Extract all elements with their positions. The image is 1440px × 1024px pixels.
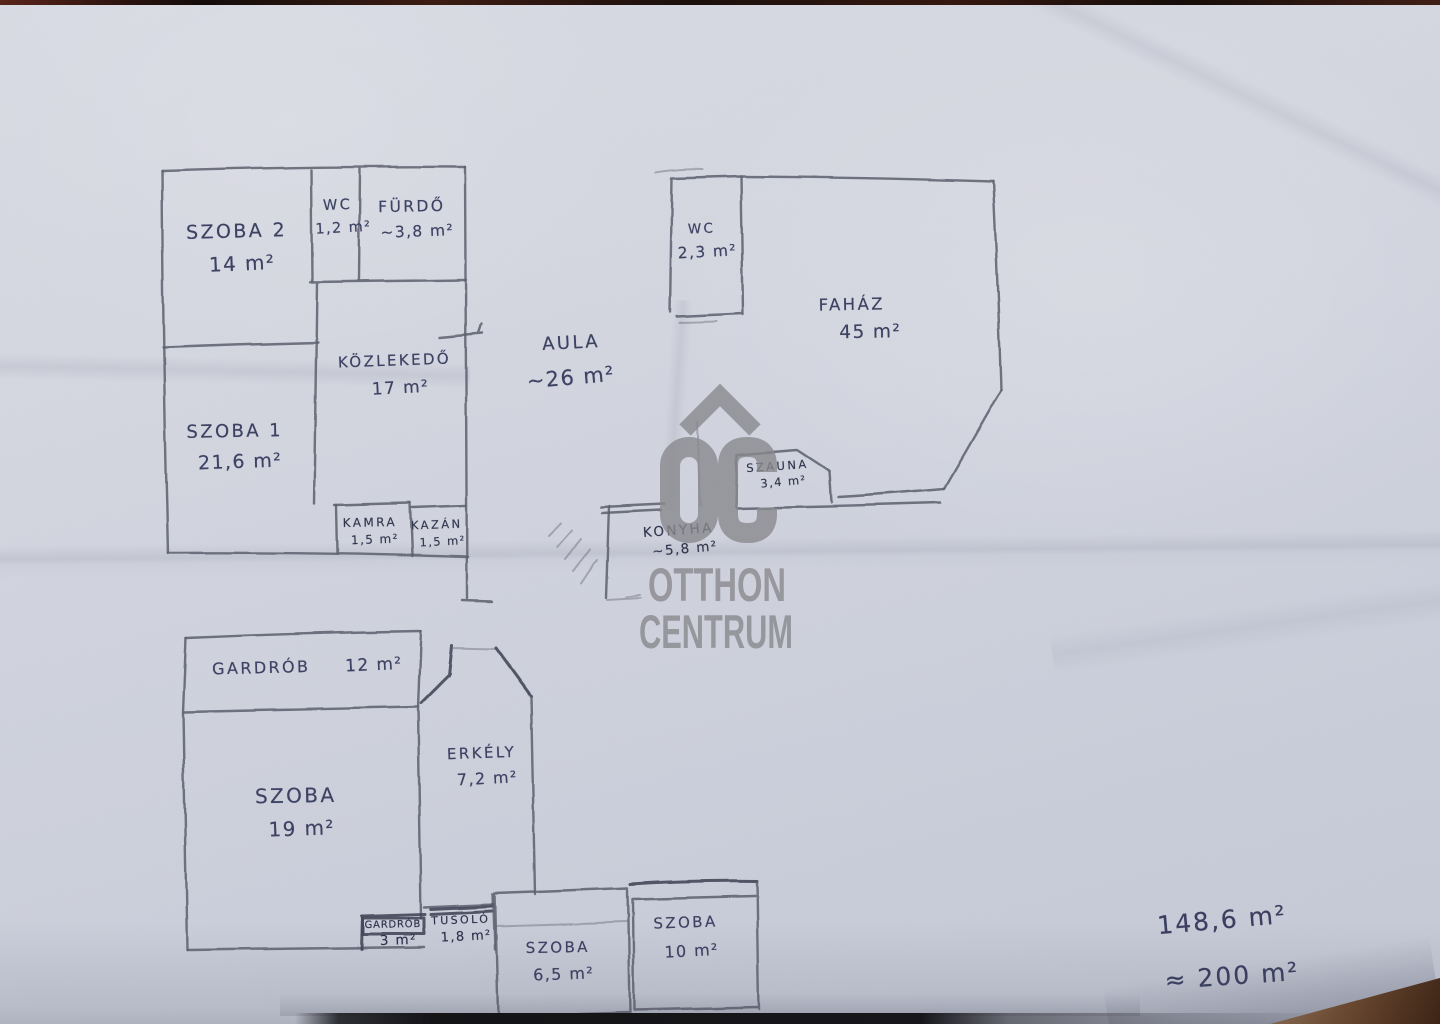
room-name: SZOBA [526, 938, 590, 957]
paper-crease-horizontal [0, 530, 1440, 580]
room-name: WC [688, 221, 716, 238]
room-label-wc-small: WC 1,2 m² [309, 197, 366, 238]
photo-grain [0, 0, 1440, 1024]
room-name: KONYHA [642, 520, 714, 541]
room-area: 3 m² [379, 932, 417, 949]
room-area: 1,8 m² [440, 928, 492, 946]
room-label-kazan: KAZÁN 1,5 m² [411, 517, 464, 550]
room-label-szoba1: SZOBA 1 21,6 m² [186, 420, 283, 474]
paper-crease-diagonal [947, 0, 1440, 300]
floor-plan-walls [0, 0, 1440, 1024]
wall-block-a-top [162, 167, 465, 171]
room-name: FAHÁZ [818, 294, 885, 314]
wall-kamra-top [334, 503, 410, 505]
wall-konyha-bottom [607, 595, 641, 600]
paper-edge-bottom [0, 1013, 1440, 1024]
wall-szoba65-inner [497, 922, 627, 926]
wall-foot [462, 600, 492, 601]
room-label-gardrob-12: GARDRÓB 12 m² [212, 655, 398, 680]
room-name: GARDRÓB [364, 919, 421, 931]
room-label-szoba-65: SZOBA 6,5 m² [526, 938, 591, 984]
wall-szoba19-right [418, 707, 421, 917]
wall-gardrob12-top [186, 631, 421, 638]
room-label-fahaz: FAHÁZ 45 m² [818, 294, 885, 343]
wall-top-hook [656, 169, 703, 172]
otthon-centrum-watermark: OTTHON CENTRUM [0, 0, 1440, 1024]
wall-gardrob12-bottom [184, 707, 416, 712]
room-area: ~3,8 m² [380, 221, 454, 242]
room-label-gardrob-3: GARDRÓB 3 m² [364, 919, 421, 949]
wall-szoba2-szoba1-divider [163, 342, 318, 347]
room-area: ~26 m² [526, 362, 616, 394]
room-name: AULA [542, 331, 601, 355]
paper-crease-right [1050, 565, 1440, 674]
room-name: KÖZLEKEDŐ [338, 350, 452, 372]
total-area-exact: 148,6 m² [1156, 900, 1288, 940]
room-area: 17 m² [371, 377, 429, 400]
room-area: 10 m² [664, 940, 719, 962]
room-label-szoba-10: SZOBA 10 m² [653, 912, 719, 961]
room-label-konyha: KONYHA ~5,8 m² [642, 520, 715, 560]
wall-szoba10-top [631, 881, 757, 884]
room-area: 1,2 m² [315, 219, 372, 238]
room-area: 1,5 m² [351, 532, 399, 548]
wall-wc2-step [679, 321, 716, 322]
floor-plan-photo: SZOBA 2 14 m² WC 1,2 m² FÜRDŐ ~3,8 m² KÖ… [0, 0, 1440, 1024]
wall-erkely-diag-left [421, 646, 452, 703]
room-name: SZOBA [255, 783, 337, 808]
room-label-wc-aula: WC 2,3 m² [672, 220, 733, 262]
stairs-hatching [549, 524, 597, 584]
wall-erkely-right [531, 696, 535, 894]
wall-block-a-bottom [168, 553, 468, 557]
room-label-szauna: SZAUNA 3,4 m² [746, 457, 810, 491]
room-area: 12 m² [345, 654, 403, 676]
room-label-szoba2: SZOBA 2 14 m² [186, 219, 288, 277]
room-label-aula: AULA ~26 m² [526, 330, 617, 392]
wall-lower-left [183, 638, 187, 950]
wall-gardrob12-right [418, 631, 421, 707]
room-label-kamra: KAMRA 1,5 m² [343, 515, 398, 547]
room-area: 7,2 m² [457, 767, 519, 789]
wall-kozlekedo-left [314, 284, 317, 504]
room-name: ERKÉLY [447, 743, 517, 763]
room-name: WC [323, 197, 353, 214]
room-area: ~5,8 m² [651, 538, 718, 560]
wall-fahaz-right [993, 181, 1001, 390]
room-area: 2,3 m² [677, 241, 737, 262]
wall-kitchen-run [737, 503, 941, 508]
room-area: 21,6 m² [198, 449, 283, 474]
watermark-roof-icon [685, 395, 755, 430]
wall-konyha-left [606, 506, 609, 598]
wall-fahaz-bottom [838, 489, 944, 497]
paper-edge-top [0, 0, 1440, 5]
room-label-kozlekedo: KÖZLEKEDŐ 17 m² [338, 350, 453, 401]
wall-tusolo-right [493, 894, 495, 950]
wall-erkely-top [453, 648, 496, 649]
room-name: KAMRA [343, 515, 398, 530]
watermark-line1: OTTHON [648, 558, 786, 611]
wall-kazan-top [412, 506, 466, 508]
room-name: TUSOLÓ [431, 912, 491, 927]
wall-divider-door-segment [440, 324, 482, 337]
room-label-tusolo: TUSOLÓ 1,8 m² [431, 912, 491, 945]
room-name: SZOBA 2 [186, 219, 288, 244]
room-area: 45 m² [839, 321, 901, 343]
room-label-furdo: FÜRDŐ ~3,8 m² [375, 197, 449, 241]
room-area: 6,5 m² [532, 963, 594, 984]
room-name: KAZÁN [411, 517, 463, 533]
room-name: SZOBA 1 [186, 420, 283, 443]
room-area: 14 m² [209, 250, 276, 277]
room-area: 1,5 m² [419, 533, 466, 549]
wall-aula-divider [697, 422, 700, 506]
wall-bath-bottom [310, 280, 466, 282]
room-name: SZOBA [653, 912, 718, 932]
wall-erkely-bottom [424, 904, 494, 907]
wall-block-a-left [162, 171, 168, 553]
paper-crease-vertical [659, 300, 694, 511]
wall-kamra-left [336, 505, 337, 553]
wall-fahaz-top [741, 176, 993, 181]
room-label-szoba-19: SZOBA 19 m² [255, 783, 338, 841]
room-label-erkely: ERKÉLY 7,2 m² [447, 743, 518, 789]
room-area: 3,4 m² [760, 473, 807, 491]
paper-sheen [0, 0, 1440, 1024]
room-area: 19 m² [268, 815, 335, 841]
wall-fahaz-diagonal [944, 390, 1001, 489]
wall-konyha-top-double [601, 504, 664, 513]
room-name: GARDRÓB [212, 657, 311, 679]
watermark-line2: CENTRUM [639, 605, 793, 658]
wall-erkely-diag-right [496, 648, 531, 696]
room-name: FÜRDŐ [378, 197, 445, 216]
